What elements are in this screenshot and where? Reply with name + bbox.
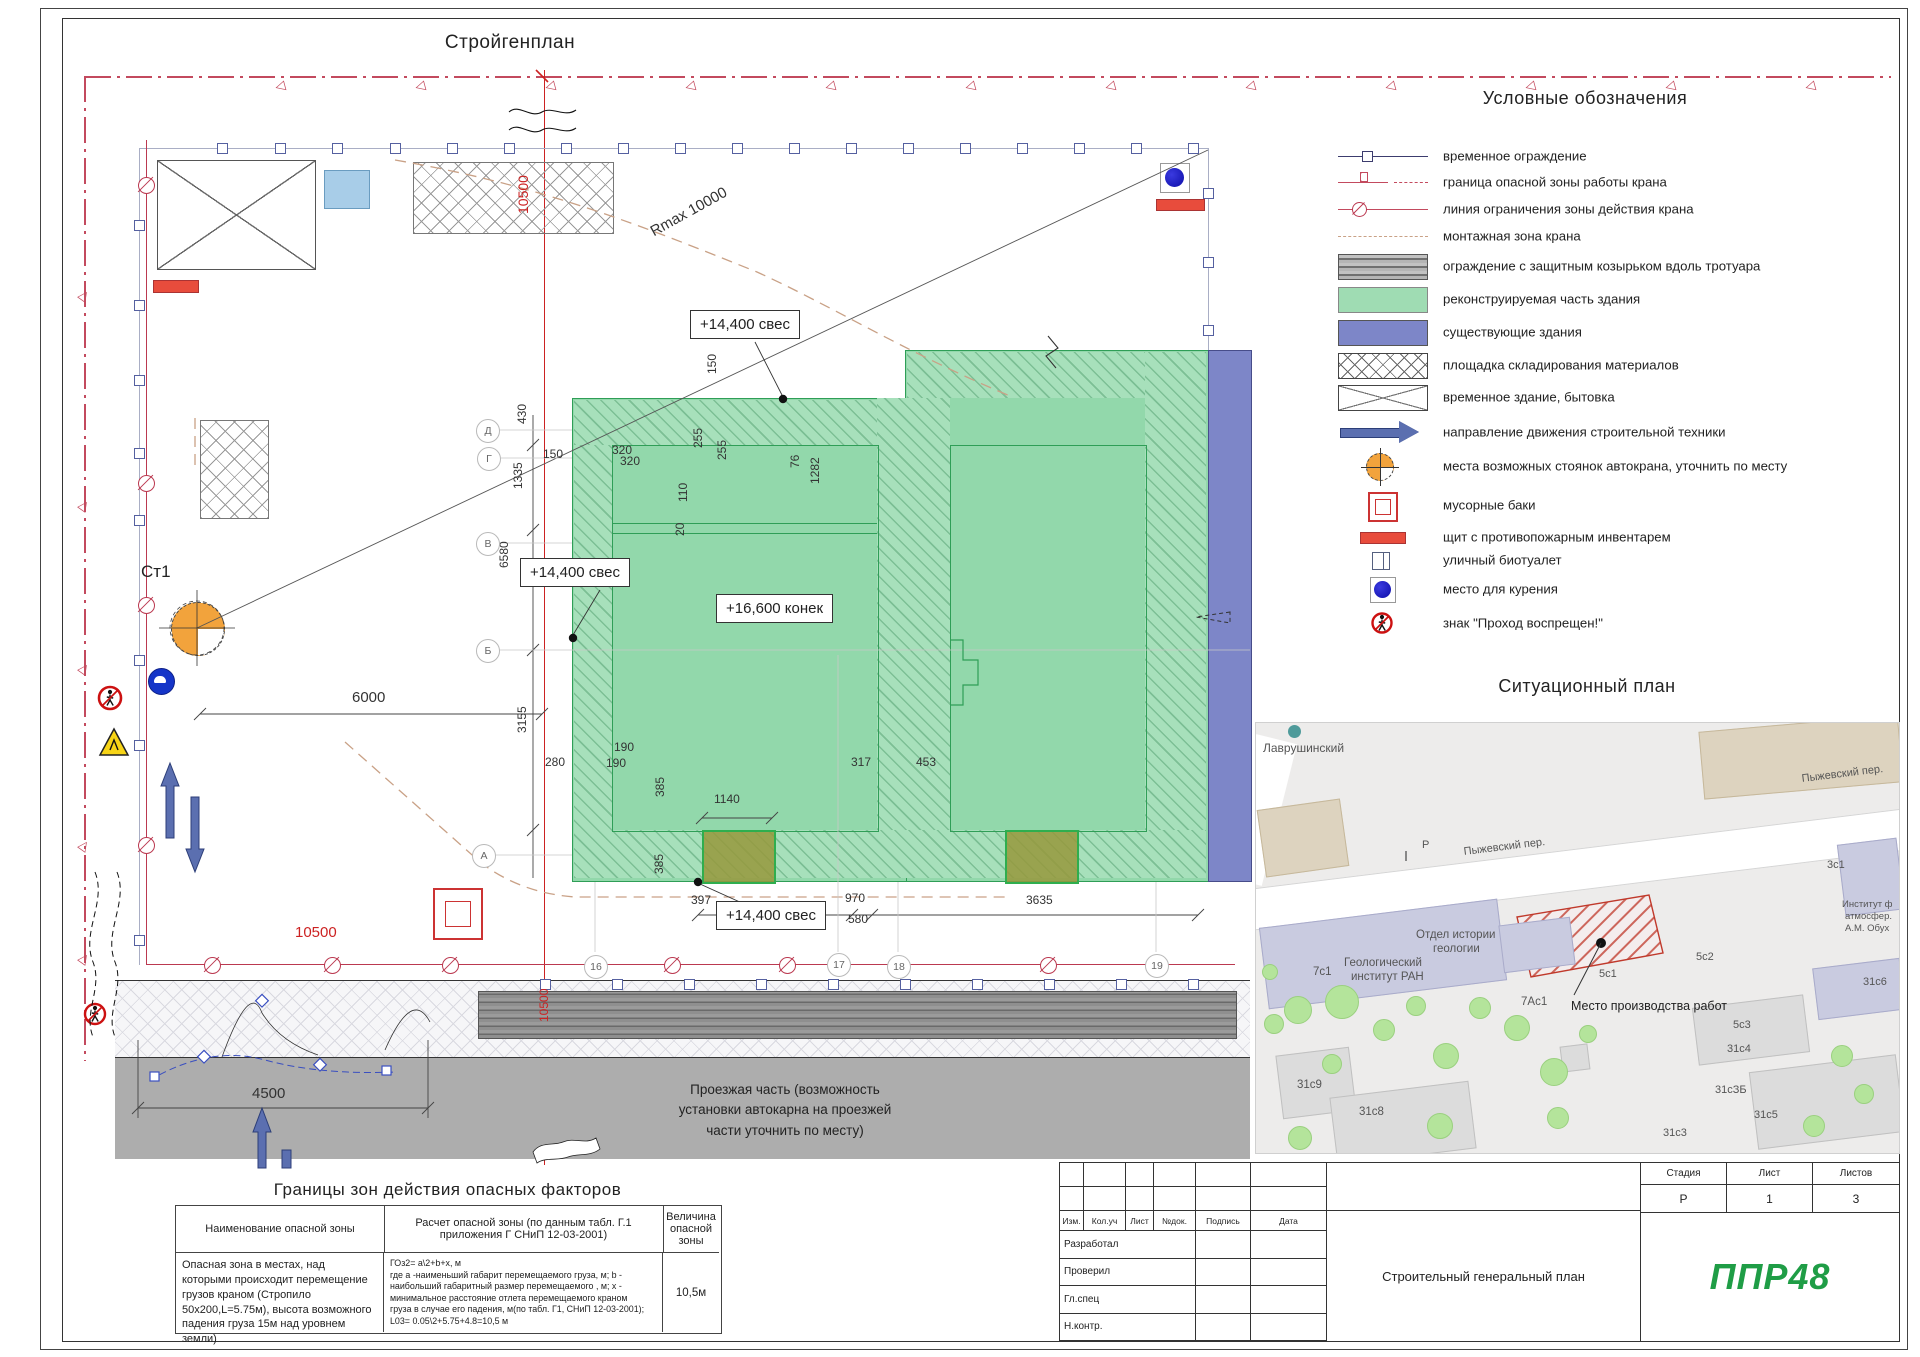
dim-label: 190 bbox=[614, 741, 634, 753]
dim-label: 190 bbox=[606, 757, 626, 769]
dim-label: 280 bbox=[545, 756, 565, 768]
dim-label: 385 bbox=[653, 854, 665, 874]
dim-label: 255 bbox=[716, 440, 728, 460]
grid-bubble: 18 bbox=[887, 955, 911, 979]
plan-dimension-labels: 4301335658016403155150150320320255255110… bbox=[0, 0, 1920, 1357]
dim-label: 110 bbox=[677, 483, 689, 502]
level-label-overhang-left: +14,400 свес bbox=[520, 558, 630, 587]
grid-bubble: Б bbox=[476, 639, 500, 663]
dim-label: 150 bbox=[543, 448, 563, 460]
dim-label: 1140 bbox=[714, 793, 740, 805]
level-label-ridge: +16,600 конек bbox=[716, 594, 833, 623]
dim-label: 430 bbox=[516, 404, 528, 424]
dim-label: 1335 bbox=[512, 462, 524, 489]
dim-label: 150 bbox=[706, 354, 718, 374]
dim-label: 580 bbox=[848, 913, 868, 925]
grid-bubble: В bbox=[476, 532, 500, 556]
grid-bubble: Д bbox=[476, 419, 500, 443]
dim-label: 1282 bbox=[809, 457, 821, 484]
dim-label: 453 bbox=[916, 756, 936, 768]
grid-bubble: А bbox=[472, 844, 496, 868]
dim-label: 970 bbox=[845, 892, 865, 904]
dim-label: 20 bbox=[674, 523, 686, 536]
grid-bubble: Г bbox=[477, 447, 501, 471]
dim-label: 6000 bbox=[352, 690, 385, 705]
dim-label: 397 bbox=[691, 894, 711, 906]
dim-label: 10500 bbox=[295, 925, 337, 940]
dim-label: 10500 bbox=[516, 175, 530, 214]
dim-label: 320 bbox=[620, 455, 640, 467]
dim-label: 385 bbox=[654, 777, 666, 797]
drawing-sheet: Стройгенплан Условные обозначения Ситуац… bbox=[0, 0, 1920, 1357]
level-label-overhang-top: +14,400 свес bbox=[690, 310, 800, 339]
dim-label: Rmax 10000 bbox=[648, 185, 730, 239]
grid-bubble: 19 bbox=[1145, 954, 1169, 978]
grid-bubble: 17 bbox=[827, 953, 851, 977]
dim-label: 3635 bbox=[1026, 894, 1053, 906]
dim-label: 10500 bbox=[538, 989, 550, 1022]
dim-label: Ст1 bbox=[141, 563, 171, 580]
grid-bubble: 16 bbox=[584, 955, 608, 979]
dim-label: 3155 bbox=[516, 706, 528, 733]
dim-label: 76 bbox=[789, 455, 801, 468]
dim-label: 317 bbox=[851, 756, 871, 768]
dim-label: 4500 bbox=[252, 1086, 285, 1101]
dim-label: 255 bbox=[692, 428, 704, 448]
level-label-overhang-bottom: +14,400 свес bbox=[716, 901, 826, 930]
